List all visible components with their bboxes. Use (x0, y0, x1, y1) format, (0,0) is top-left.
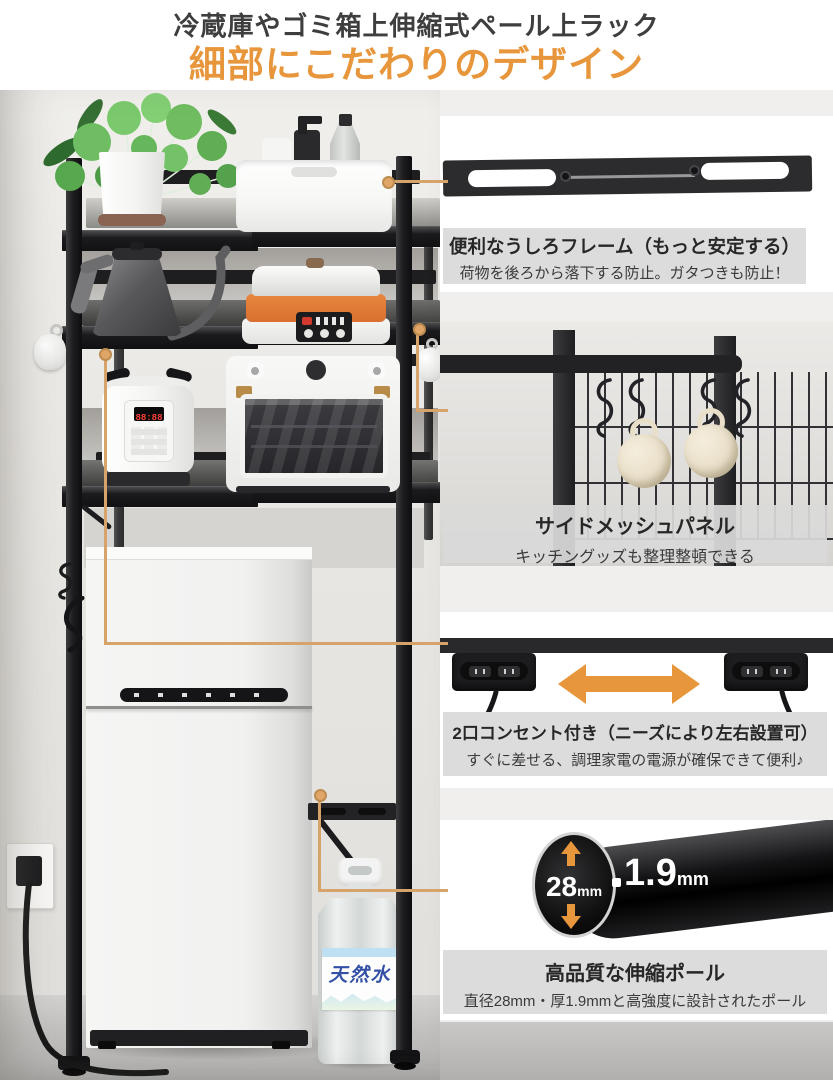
pole-cross-section: 28mm (532, 832, 616, 938)
feature-card-pole: 28mm 1.9mm 高品質な伸縮ポール 直径28mm・厚1.9mmと高強度に設… (440, 820, 833, 1020)
connector-dot (382, 176, 395, 189)
caption-mesh-panel: サイドメッシュパネル キッチングッズも整理整頓できる (443, 505, 827, 563)
back-frame-photo (443, 155, 812, 196)
main-product-photo: 天然水 (0, 90, 440, 1080)
connector-line (318, 889, 448, 892)
connector-line (104, 642, 448, 645)
left-right-arrow-icon (558, 664, 700, 704)
connector-dot (413, 323, 426, 336)
connector-line (318, 800, 321, 892)
feature-title: 高品質な伸縮ポール (443, 957, 827, 986)
connector-line (392, 180, 448, 183)
feature-panel: 便利なうしろフレーム（もっと安定する） 荷物を後ろから落下する防止。ガタつきも防… (440, 90, 833, 1080)
connector-line (104, 359, 107, 645)
pole-diameter-label: 28mm (535, 871, 613, 903)
feature-desc: キッチングッズも整理整頓できる (443, 543, 827, 566)
caption-outlet: 2口コンセント付き（ニーズにより左右設置可） すぐに差せる、調理家電の電源が確保… (443, 712, 827, 776)
feature-title: 2口コンセント付き（ニーズにより左右設置可） (443, 719, 827, 744)
page-subtitle: 細部にこだわりのデザイン (0, 34, 833, 88)
caption-back-frame: 便利なうしろフレーム（もっと安定する） 荷物を後ろから落下する防止。ガタつきも防… (443, 228, 806, 284)
thickness-marker (612, 878, 621, 887)
feature-title: サイドメッシュパネル (443, 510, 827, 539)
diameter-arrow-shaft (567, 853, 575, 866)
product-infographic: 冷蔵庫やゴミ箱上伸縮式ペール上ラック 細部にこだわりのデザイン (0, 0, 833, 1080)
feature-title: 便利なうしろフレーム（もっと安定する） (443, 233, 806, 259)
s-hook-icon (728, 378, 758, 440)
pole-thickness-value: 1.9 (624, 852, 677, 894)
connector-line (416, 334, 419, 412)
feature-desc: 直径28mm・厚1.9mmと高強度に設計されたポール (443, 990, 827, 1011)
feature-card-outlet: 2口コンセント付き（ニーズにより左右設置可） すぐに差せる、調理家電の電源が確保… (440, 612, 833, 788)
connector-dot (314, 789, 327, 802)
hanging-mug (617, 434, 671, 488)
pole-thickness-unit: mm (677, 869, 709, 889)
pole-thickness-label: 1.9mm (624, 852, 709, 895)
photo-vignette (0, 90, 440, 1080)
pole-diameter-unit: mm (577, 883, 602, 899)
hanging-mug (684, 424, 738, 478)
s-hook-icon (590, 378, 620, 440)
feature-card-mesh-panel: サイドメッシュパネル キッチングッズも整理整頓できる (440, 322, 833, 566)
diameter-arrow-down-icon (561, 916, 581, 929)
outlet-strip-right (724, 653, 808, 691)
feature-card-back-frame: 便利なうしろフレーム（もっと安定する） 荷物を後ろから落下する防止。ガタつきも防… (440, 116, 833, 292)
feature-desc: すぐに差せる、調理家電の電源が確保できて便利♪ (443, 749, 827, 770)
outlet-strip-left (452, 653, 536, 691)
connector-dot (99, 348, 112, 361)
caption-pole: 高品質な伸縮ポール 直径28mm・厚1.9mmと高強度に設計されたポール (443, 950, 827, 1014)
panel-floor (440, 1022, 833, 1080)
connector-line (416, 409, 448, 412)
mesh-top-bar (440, 355, 742, 373)
outlet-rail (440, 638, 833, 653)
pole-diameter-value: 28 (546, 871, 577, 902)
feature-desc: 荷物を後ろから落下する防止。ガタつきも防止！ (443, 262, 806, 283)
